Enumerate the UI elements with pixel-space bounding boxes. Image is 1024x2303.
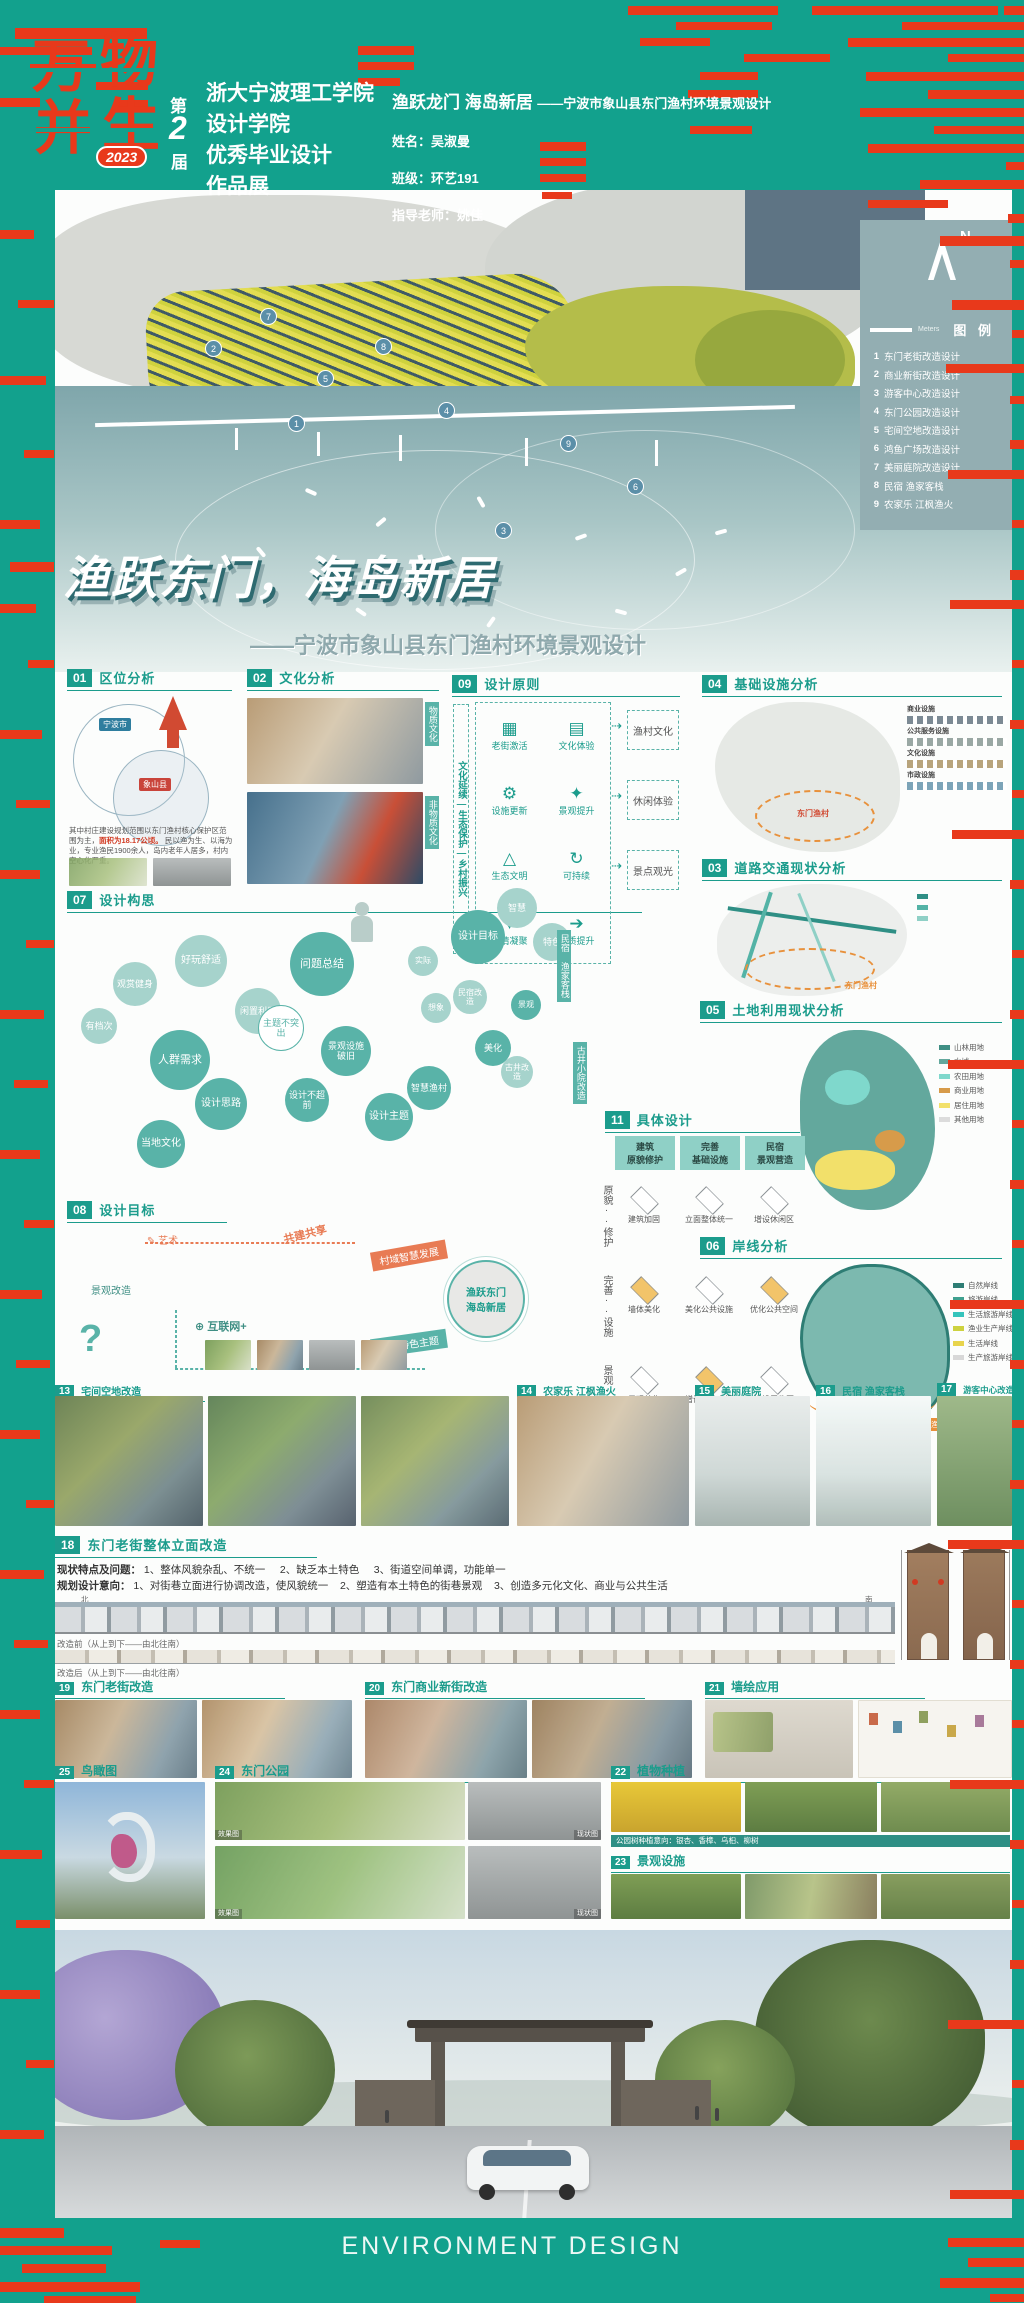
glitch-bar bbox=[26, 1500, 54, 1508]
goal-thumb bbox=[361, 1340, 407, 1370]
footer-title: ENVIRONMENT DESIGN bbox=[0, 2232, 1024, 2261]
photo-park-status-1: 现状图 bbox=[468, 1782, 601, 1840]
detail-cell: 优化公共空间 bbox=[745, 1272, 803, 1314]
glitch-bar bbox=[0, 520, 40, 529]
section-05-title: 土地利用现状分析 bbox=[732, 1000, 844, 1019]
gate-tower-drawing-1 bbox=[907, 1550, 949, 1660]
section-18-number: 18 bbox=[55, 1536, 80, 1554]
legend-item: 2商业新街改造设计 bbox=[870, 368, 1002, 382]
detail-row-label: 完善··设施 bbox=[599, 1275, 614, 1337]
section-02-number: 02 bbox=[247, 669, 272, 687]
logo-char-2: 物 bbox=[100, 33, 158, 91]
section-25-number: 25 bbox=[55, 1766, 74, 1779]
glitch-bar bbox=[0, 1430, 40, 1439]
detail-col-header: 民宿景观营造 bbox=[745, 1136, 805, 1170]
goal-line-teal-v bbox=[175, 1310, 177, 1368]
goal-thumb bbox=[257, 1340, 303, 1370]
principle-output: 渔村文化 bbox=[627, 710, 679, 750]
north-label: N bbox=[960, 228, 971, 245]
glitch-bar bbox=[1010, 1480, 1024, 1489]
principle-item: ▤文化体验 bbox=[558, 719, 594, 752]
section-24-number: 24 bbox=[215, 1766, 234, 1779]
photo-facility-3 bbox=[881, 1874, 1010, 1919]
pencil-icon: ✎ bbox=[147, 1236, 158, 1247]
photo-courtyard-1 bbox=[55, 1396, 203, 1526]
sketch-figure bbox=[975, 1715, 984, 1727]
goal-thumb bbox=[309, 1340, 355, 1370]
facade-strip-before bbox=[55, 1602, 895, 1634]
sail-icon: △ bbox=[491, 849, 527, 869]
legend-item: 8民宿 渔家客栈 bbox=[870, 479, 1002, 493]
photo-ginkgo bbox=[611, 1782, 741, 1832]
map-marker-9: 9 bbox=[560, 435, 577, 452]
section-25-title: 鸟瞰图 bbox=[81, 1762, 117, 1779]
legend-dots bbox=[907, 716, 1007, 724]
glitch-bar bbox=[0, 2282, 140, 2292]
section-06-title: 岸线分析 bbox=[732, 1236, 788, 1255]
photo-visitor-center-road bbox=[937, 1396, 1012, 1526]
section-17-title: 游客中心改造 bbox=[963, 1384, 1012, 1396]
goal-label-art: ✎ 艺术 bbox=[147, 1232, 178, 1247]
detail-cell: 建筑加固 bbox=[615, 1182, 673, 1224]
section-22-number: 22 bbox=[611, 1766, 630, 1779]
advisor-name: 指导老师：姚佳 bbox=[392, 205, 1012, 224]
scale-bar-icon bbox=[870, 328, 912, 332]
photo-camphor bbox=[745, 1782, 877, 1832]
project-title: 渔跃龙门 海岛新居 bbox=[392, 93, 533, 112]
glitch-bar bbox=[1012, 330, 1024, 338]
principle-output: 休闲体验 bbox=[627, 780, 679, 820]
glitch-bar bbox=[1010, 1660, 1024, 1669]
map-marker-7: 7 bbox=[260, 308, 277, 325]
page-header: 万 物 并 生 2023 第 2 届 浙大宁波理工学院 设计学院 优秀毕业设计 … bbox=[0, 0, 1024, 230]
glitch-bar bbox=[0, 1990, 40, 1999]
map-marker-8: 8 bbox=[375, 338, 392, 355]
photo-aerial-2 bbox=[153, 858, 231, 886]
bubble: 设计主题 bbox=[365, 1093, 413, 1141]
glitch-bar bbox=[990, 2294, 1024, 2302]
section-19-title: 东门老街改造 bbox=[81, 1678, 153, 1695]
goal-label-landscape: 景观改造 bbox=[91, 1282, 131, 1297]
section-04-number: 04 bbox=[702, 675, 727, 693]
photo-caption: 效果图 bbox=[215, 1830, 242, 1840]
section-08-title: 设计目标 bbox=[99, 1200, 155, 1219]
culture-tag-1: 物质文化 bbox=[425, 702, 439, 746]
bubble: 设计目标 bbox=[451, 910, 505, 964]
glitch-bar bbox=[1010, 880, 1024, 889]
section-18-title: 东门老街整体立面改造 bbox=[87, 1535, 227, 1554]
section-03-title: 道路交通现状分析 bbox=[734, 858, 846, 877]
glitch-bar bbox=[0, 1850, 42, 1859]
detail-col-header: 完善基础设施 bbox=[680, 1136, 740, 1170]
section-05-number: 05 bbox=[700, 1001, 725, 1019]
logo-char-1: 万 bbox=[32, 38, 90, 96]
glitch-bar bbox=[24, 450, 54, 458]
section-09-number: 09 bbox=[452, 675, 477, 693]
detail-cell: 增设休闲区 bbox=[745, 1182, 803, 1224]
glitch-bar bbox=[1010, 396, 1024, 404]
culture-tag-2: 非物质文化 bbox=[425, 796, 439, 849]
section-11-title: 具体设计 bbox=[637, 1110, 693, 1129]
legend-item: 7美丽庭院改造设计 bbox=[870, 460, 1002, 474]
person-figure bbox=[695, 2106, 699, 2120]
legend-item: 6鸿鱼广场改造设计 bbox=[870, 442, 1002, 456]
photo-birdseye-sculpture bbox=[55, 1782, 205, 1919]
legend-item: 3游客中心改造设计 bbox=[870, 386, 1002, 400]
map-marker-4: 4 bbox=[438, 402, 455, 419]
glitch-bar bbox=[1010, 2140, 1024, 2150]
section-20-title: 东门商业新街改造 bbox=[391, 1678, 487, 1695]
glitch-bar bbox=[24, 1220, 54, 1228]
glitch-bar bbox=[1012, 790, 1024, 798]
detail-col-header: 建筑原貌修护 bbox=[615, 1136, 675, 1170]
house-diamond-icon bbox=[630, 1276, 659, 1305]
glitch-bar bbox=[14, 1080, 48, 1088]
student-name: 姓名：吴淑曼 bbox=[392, 131, 1012, 150]
glitch-bar bbox=[1012, 1900, 1024, 1908]
photo-caption: 现状图 bbox=[574, 1909, 601, 1919]
glitch-bar bbox=[0, 870, 40, 879]
glitch-bar bbox=[1010, 440, 1024, 449]
flow-arrow-icon: ⇢ bbox=[611, 858, 622, 874]
glitch-bar bbox=[0, 1150, 40, 1159]
concept-ribbon-2: 古井小院改造 bbox=[573, 1042, 587, 1104]
glitch-bar bbox=[16, 1360, 50, 1368]
person-figure bbox=[385, 2110, 389, 2123]
street-grid-icon: ▦ bbox=[491, 719, 527, 739]
glitch-bar bbox=[1012, 1120, 1024, 1128]
goal-label-internet: ⊕ 互联网+ bbox=[195, 1318, 247, 1334]
glitch-bar bbox=[1010, 720, 1024, 729]
house-diamond-icon bbox=[695, 1186, 724, 1215]
ningbo-landmark-icon bbox=[159, 696, 187, 730]
school-line-4: 作品展 bbox=[206, 171, 374, 202]
glitch-bar bbox=[16, 1920, 50, 1928]
school-line-3: 优秀毕业设计 bbox=[206, 140, 374, 171]
goal-center-badge: 渔跃东门海岛新居 bbox=[447, 1260, 525, 1338]
glitch-bar bbox=[0, 1290, 42, 1299]
glitch-bar bbox=[1012, 1240, 1024, 1248]
glitch-bar bbox=[1010, 1010, 1024, 1019]
person-silhouette-icon bbox=[355, 902, 369, 916]
photo-willow bbox=[881, 1782, 1010, 1832]
legend-dots bbox=[907, 760, 1007, 768]
legend-item: 9农家乐 江枫渔火 bbox=[870, 497, 1002, 511]
section-03-number: 03 bbox=[702, 859, 727, 877]
recycle-icon: ↻ bbox=[563, 849, 590, 869]
photo-homestay-render bbox=[816, 1396, 931, 1526]
mural-art bbox=[713, 1712, 773, 1752]
bubble: 智慧渔村 bbox=[407, 1066, 451, 1110]
section-22-title: 植物种植 bbox=[637, 1762, 685, 1779]
glitch-bar bbox=[44, 2296, 136, 2303]
bubble: 有档次 bbox=[81, 1008, 117, 1044]
bubble: 主题不突出 bbox=[258, 1005, 304, 1051]
principle-item: ↻可持续 bbox=[563, 849, 590, 882]
student-class: 班级：环艺191 bbox=[392, 168, 1012, 187]
bubble: 民宿改造 bbox=[453, 980, 487, 1014]
flow-arrow-icon: ⇢ bbox=[611, 788, 622, 804]
detail-cell: 立面整体统一 bbox=[680, 1182, 738, 1224]
coastline-legend: 自然岸线 旅游岸线 生活旅游岸线 渔业生产岸线 生活岸线 生产旅游岸线 bbox=[953, 1276, 1012, 1363]
final-render bbox=[55, 1930, 1012, 2218]
glitch-bar bbox=[18, 300, 54, 308]
edition-char-2: 2 bbox=[169, 110, 187, 147]
photo-farmstay-collage bbox=[517, 1396, 689, 1526]
photo-park-status-2: 现状图 bbox=[468, 1846, 601, 1919]
photo-park-effect-2: 效果图 bbox=[215, 1846, 465, 1919]
legend-dots bbox=[907, 738, 1007, 746]
village-label: 东门渔村 bbox=[845, 980, 877, 991]
principle-item: △生态文明 bbox=[491, 849, 527, 882]
landuse-legend: 山林用地 水域 农田用地 商业用地 居住用地 其他用地 bbox=[939, 1038, 984, 1125]
section-01-title: 区位分析 bbox=[99, 668, 155, 687]
principle-item: ✦景观提升 bbox=[558, 784, 594, 817]
facade-before-caption: 改造前（从上到下——由北往南） bbox=[57, 1638, 185, 1650]
pier bbox=[317, 432, 320, 456]
bubble: 实际 bbox=[408, 946, 438, 976]
bubble: 观赏健身 bbox=[113, 962, 157, 1006]
legend-item: 4东门公园改造设计 bbox=[870, 405, 1002, 419]
map-legend-panel: N Meters 图 例 1东门老街改造设计 2商业新街改造设计 3游客中心改造… bbox=[860, 220, 1012, 530]
glitch-bar bbox=[0, 1570, 44, 1579]
section-21-number: 21 bbox=[705, 1682, 724, 1695]
glitch-bar bbox=[16, 800, 50, 808]
facade-issues-line: 现状特点及问题： 1、整体风貌杂乱、不统一 2、缺乏本土特色 3、街道空间单调，… bbox=[57, 1562, 997, 1577]
glitch-bar bbox=[0, 1010, 44, 1019]
house-diamond-icon bbox=[630, 1186, 659, 1215]
legend-title: 图 例 bbox=[953, 320, 995, 339]
glitch-bar bbox=[1010, 570, 1024, 580]
glitch-bar bbox=[1012, 2080, 1024, 2088]
detail-cell: 美化公共设施 bbox=[680, 1272, 738, 1314]
sketch-figure bbox=[919, 1711, 928, 1723]
glitch-bar bbox=[1012, 660, 1024, 668]
glitch-bar bbox=[1012, 950, 1024, 958]
section-06-number: 06 bbox=[700, 1237, 725, 1255]
legend-item: 1东门老街改造设计 bbox=[870, 349, 1002, 363]
section-08-number: 08 bbox=[67, 1201, 92, 1219]
bubble: 景观设施破旧 bbox=[321, 1026, 371, 1076]
green-tree-right bbox=[755, 1940, 985, 2140]
principle-item: ▦老街激活 bbox=[491, 719, 527, 752]
glitch-bar bbox=[0, 1710, 40, 1719]
facade-strip-after bbox=[55, 1650, 895, 1664]
detail-cell: 墙体美化 bbox=[615, 1272, 673, 1314]
section-24-title: 东门公园 bbox=[241, 1762, 289, 1779]
photo-park-effect-1: 效果图 bbox=[215, 1782, 465, 1840]
photo-culture-buildings bbox=[247, 698, 423, 784]
glitch-bar bbox=[940, 2278, 1024, 2288]
section-11-number: 11 bbox=[605, 1111, 630, 1129]
glitch-bar bbox=[1010, 1840, 1024, 1849]
section-20-number: 20 bbox=[365, 1682, 384, 1695]
photo-courtyard-render bbox=[695, 1396, 810, 1526]
bubble: 问题总结 bbox=[290, 932, 354, 996]
school-line-1: 浙大宁波理工学院 bbox=[206, 78, 374, 109]
goal-thumb bbox=[205, 1340, 251, 1370]
photo-caption: 现状图 bbox=[574, 1830, 601, 1840]
bubble: 古井改造 bbox=[501, 1056, 533, 1088]
section-01-number: 01 bbox=[67, 669, 92, 687]
section-19-number: 19 bbox=[55, 1682, 74, 1695]
photo-courtyard-3 bbox=[361, 1396, 509, 1526]
area-highlight: 面积为18.17公顷。 bbox=[99, 836, 163, 845]
photo-culture-boats bbox=[247, 792, 423, 884]
map-marker-1: 1 bbox=[288, 415, 305, 432]
landuse-commercial-patch bbox=[875, 1130, 905, 1152]
glitch-bar bbox=[0, 2130, 44, 2139]
house-diamond-icon bbox=[760, 1276, 789, 1305]
sculpture-fish bbox=[111, 1834, 137, 1868]
photo-aerial-1 bbox=[69, 858, 147, 886]
book-icon: ▤ bbox=[558, 719, 594, 739]
section-23-title: 景观设施 bbox=[637, 1852, 685, 1869]
map-marker-3: 3 bbox=[495, 522, 512, 539]
section-09-title: 设计原则 bbox=[484, 674, 540, 693]
glitch-bar bbox=[14, 1640, 48, 1648]
map-marker-6: 6 bbox=[627, 478, 644, 495]
goal-ribbon-smart: 村域智慧发展 bbox=[370, 1240, 448, 1272]
county-label: 象山县 bbox=[139, 778, 171, 791]
glitch-bar bbox=[0, 230, 34, 239]
infra-legend: 商业设施 公共服务设施 文化设施 市政设施 bbox=[907, 704, 1007, 792]
glitch-bar bbox=[1010, 1360, 1024, 1369]
person-figure bbox=[715, 2108, 719, 2121]
city-label: 宁波市 bbox=[99, 718, 131, 731]
school-line-2: 设计学院 bbox=[206, 109, 374, 140]
glitch-bar bbox=[24, 1780, 54, 1788]
concept-ribbon-1: 民宿 渔家客栈 bbox=[557, 930, 571, 1002]
poster-board: 1 2 3 4 5 6 7 8 9 N Meters 图 例 1东门老街改造设计… bbox=[55, 190, 1012, 2218]
traffic-legend bbox=[917, 890, 928, 921]
glitch-bar bbox=[26, 940, 54, 948]
legend-item: 5宅间空地改造设计 bbox=[870, 423, 1002, 437]
dimension-line bbox=[901, 1550, 902, 1660]
principle-item: ⚙设施更新 bbox=[491, 784, 527, 817]
glitch-bar bbox=[1012, 1720, 1024, 1728]
bubble: 想象 bbox=[421, 993, 451, 1023]
section-02-title: 文化分析 bbox=[279, 668, 335, 687]
glitch-bar bbox=[1010, 1960, 1024, 1969]
bubble: 设计不超前 bbox=[285, 1078, 329, 1122]
glitch-bar bbox=[0, 604, 36, 613]
green-tree-left bbox=[175, 2000, 335, 2140]
glitch-bar bbox=[1010, 260, 1024, 268]
north-arrow-icon: N bbox=[870, 228, 1002, 298]
ningbo-landmark-base bbox=[167, 730, 179, 748]
section-07-title: 设计构思 bbox=[99, 890, 155, 909]
glitch-bar bbox=[26, 2060, 54, 2068]
poster-main-title: 渔跃东门，海岛新居 bbox=[63, 542, 495, 608]
logo-year-badge: 2023 bbox=[96, 146, 147, 168]
sketch-figure bbox=[947, 1725, 956, 1737]
section-04-title: 基础设施分析 bbox=[734, 674, 818, 693]
section-07-number: 07 bbox=[67, 891, 92, 909]
edition-char-3: 届 bbox=[171, 148, 188, 173]
photo-courtyard-2 bbox=[208, 1396, 356, 1526]
globe-icon: ⊕ bbox=[195, 1321, 207, 1333]
house-diamond-icon bbox=[695, 1276, 724, 1305]
flow-arrow-icon: ⇢ bbox=[611, 718, 622, 734]
glitch-bar bbox=[1012, 1600, 1024, 1608]
facade-intent-line: 规划设计意向： 1、对街巷立面进行协调改造，使风貌统一 2、塑造有本土特色的街巷… bbox=[57, 1578, 997, 1593]
section-17-number: 17 bbox=[937, 1383, 956, 1396]
bubble: 设计思路 bbox=[195, 1078, 247, 1130]
glitch-bar bbox=[0, 730, 42, 739]
glitch-bar bbox=[0, 376, 46, 385]
village-label: 东门渔村 bbox=[797, 808, 829, 819]
sparkle-icon: ✦ bbox=[558, 784, 594, 804]
project-subtitle: ——宁波市象山县东门渔村环境景观设计 bbox=[537, 96, 771, 111]
glitch-bar bbox=[22, 2264, 106, 2273]
gear-icon: ⚙ bbox=[491, 784, 527, 804]
detail-row-label: 原貌··修护 bbox=[599, 1185, 614, 1247]
glitch-bar bbox=[10, 562, 54, 572]
bubble: 景观 bbox=[511, 990, 541, 1020]
house-diamond-icon bbox=[760, 1186, 789, 1215]
landuse-residential-patch bbox=[815, 1150, 895, 1190]
sketch-figure bbox=[869, 1713, 878, 1725]
dimension-line bbox=[1009, 1550, 1010, 1660]
photo-caption: 效果图 bbox=[215, 1909, 242, 1919]
section-21-title: 墙绘应用 bbox=[731, 1678, 779, 1695]
gate-tower-drawing-2 bbox=[963, 1550, 1005, 1660]
glitch-bar bbox=[1012, 1420, 1024, 1428]
pier bbox=[235, 428, 238, 450]
legend-dots bbox=[907, 782, 1007, 790]
question-icon: ? bbox=[79, 1318, 102, 1361]
landuse-farm-patch bbox=[825, 1070, 870, 1105]
photo-facility-1 bbox=[611, 1874, 741, 1919]
scale-unit: Meters bbox=[918, 326, 939, 333]
bubble: 当地文化 bbox=[137, 1120, 185, 1168]
bubble: 人群需求 bbox=[150, 1030, 210, 1090]
sketch-figure bbox=[893, 1721, 902, 1733]
person-silhouette-body bbox=[351, 916, 373, 942]
glitch-bar bbox=[28, 660, 54, 668]
plant-caption-bar: 公园树种植意向：银杏、香樟、乌桕、柳树 bbox=[611, 1835, 1010, 1847]
map-marker-2: 2 bbox=[205, 340, 222, 357]
bubble: 智慧 bbox=[497, 888, 537, 928]
glitch-bar bbox=[1012, 520, 1024, 528]
photo-facility-bike-mural bbox=[745, 1874, 877, 1919]
bubble: 好玩舒适 bbox=[175, 935, 227, 987]
section-23-number: 23 bbox=[611, 1856, 630, 1869]
poster-subtitle: ——宁波市象山县东门渔村环境景观设计 bbox=[250, 628, 646, 660]
principle-output: 景点观光 bbox=[627, 850, 679, 890]
map-marker-5: 5 bbox=[317, 370, 334, 387]
glitch-bar bbox=[1010, 1180, 1024, 1189]
